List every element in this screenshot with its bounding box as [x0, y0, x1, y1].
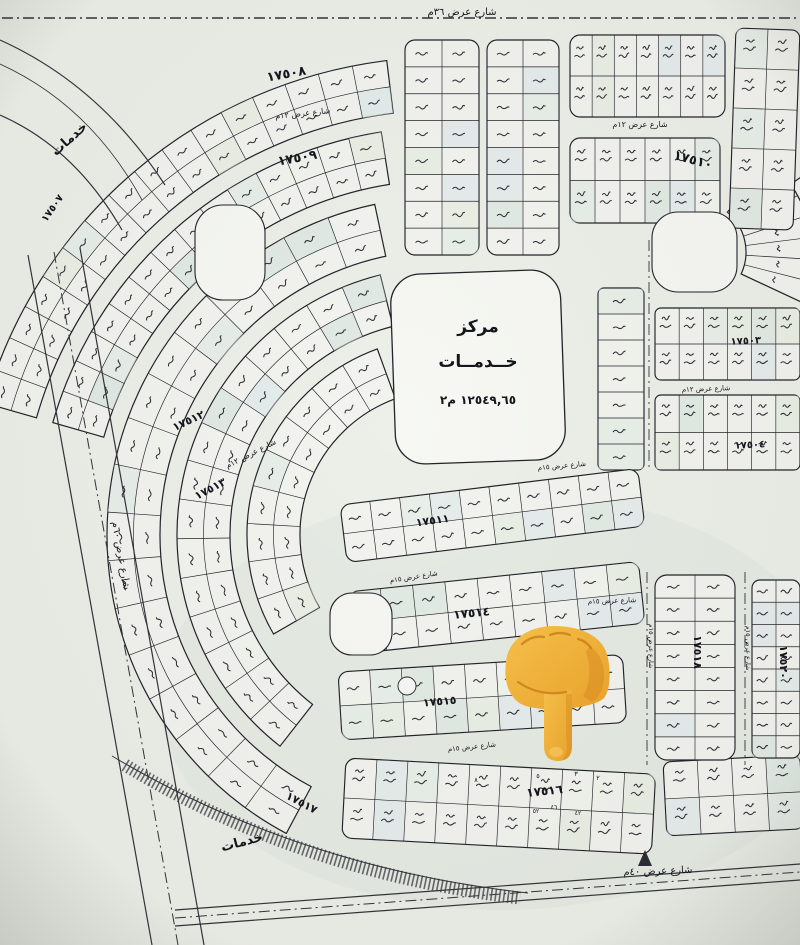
- tinted-parcel: [357, 87, 393, 118]
- tinted-parcel: [599, 445, 644, 470]
- services-center-title: خــدمــات: [438, 352, 517, 372]
- tinted-parcel: [623, 773, 655, 813]
- street-name-label: شارع عرض ٣٦م: [427, 7, 496, 18]
- tinted-parcel: [443, 121, 479, 147]
- tinted-parcel: [656, 433, 679, 469]
- tinted-parcel: [612, 498, 644, 529]
- tinted-parcel: [659, 36, 680, 76]
- plot-number: ٢: [596, 774, 600, 782]
- plot-map-photo: مركزخــدمــات١٢٥٤٩,٦٥ م٢شارع عرض ٣٦مشارع…: [0, 0, 800, 945]
- tinted-parcel: [777, 603, 800, 624]
- finger-tip-highlight: [549, 747, 563, 757]
- tinted-parcel: [443, 175, 479, 201]
- parcel-block: [487, 40, 559, 255]
- parcel-block: [655, 308, 800, 380]
- tinted-parcel: [443, 229, 479, 255]
- tinted-parcel: [406, 762, 438, 802]
- tinted-parcel: [704, 309, 727, 344]
- tinted-parcel: [753, 736, 776, 757]
- tinted-parcel: [666, 798, 701, 835]
- street-name-label: شارع عرض ١٢م: [682, 384, 731, 394]
- block-number-label: ١٧٥٠٤: [734, 439, 765, 452]
- tinted-parcel: [599, 289, 644, 314]
- open-area: [195, 205, 265, 300]
- open-area: [330, 593, 392, 655]
- subdivision-map: مركزخــدمــات١٢٥٤٩,٦٥ م٢شارع عرض ٣٦مشارع…: [0, 0, 800, 945]
- tinted-parcel: [542, 569, 576, 602]
- parcel-block: [598, 288, 644, 470]
- services-center-area: ١٢٥٤٩,٦٥ م٢: [440, 393, 516, 408]
- tinted-parcel: [768, 792, 800, 829]
- small-circle-plot: [398, 677, 416, 695]
- plot-number: ٥: [536, 772, 540, 780]
- block-number-label: ١٧٥٢٠: [777, 645, 790, 679]
- tinted-parcel: [406, 148, 442, 174]
- tinted-parcel: [776, 309, 799, 344]
- tinted-parcel: [735, 29, 767, 69]
- tinted-parcel: [571, 181, 595, 222]
- parcel-block: [729, 28, 800, 230]
- tinted-parcel: [752, 345, 775, 380]
- tinted-parcel: [599, 419, 644, 444]
- tinted-parcel: [524, 94, 559, 120]
- tinted-parcel: [680, 396, 703, 432]
- tinted-parcel: [766, 755, 800, 792]
- parcel-block: [655, 395, 800, 470]
- tinted-parcel: [593, 36, 614, 76]
- street-name-label: شارع عرض ١٥م: [744, 626, 752, 671]
- parcel-block: [342, 758, 656, 854]
- tinted-parcel: [753, 603, 776, 624]
- tinted-parcel: [341, 705, 373, 740]
- tinted-parcel: [593, 77, 614, 117]
- tinted-parcel: [607, 562, 641, 595]
- open-area: [652, 212, 737, 292]
- block-number-label: ١٧٥١٨: [691, 635, 704, 669]
- street-name-label: شارع عرض ١٥م: [588, 596, 637, 606]
- tinted-parcel: [488, 148, 523, 174]
- parcel-block: [570, 35, 725, 117]
- tinted-parcel: [524, 67, 559, 93]
- tinted-parcel: [443, 202, 479, 228]
- parcel-block: [663, 755, 800, 836]
- tinted-parcel: [730, 189, 762, 229]
- parcel-block: [570, 138, 720, 223]
- parcel-block: [752, 580, 800, 758]
- services-center-title: مركز: [456, 317, 499, 337]
- plot-number: ٥٢: [533, 808, 539, 815]
- parcel-block: [405, 40, 479, 255]
- tinted-parcel: [493, 513, 525, 544]
- tinted-parcel: [375, 760, 407, 800]
- tinted-parcel: [523, 509, 555, 540]
- tinted-parcel: [467, 697, 499, 732]
- tinted-parcel: [413, 582, 447, 615]
- tinted-parcel: [488, 202, 523, 228]
- tinted-parcel: [776, 396, 799, 432]
- plot-number: ٣: [574, 770, 578, 778]
- tinted-parcel: [582, 502, 614, 533]
- street-name-label: شارع عرض ١٢م: [612, 120, 668, 129]
- tinted-parcel: [488, 175, 523, 201]
- plot-number: ٤٢: [575, 810, 581, 817]
- tinted-parcel: [753, 625, 776, 646]
- tinted-parcel: [656, 714, 695, 736]
- street-name-label: شارع عرض ١٥م: [647, 624, 655, 669]
- tinted-parcel: [372, 703, 404, 738]
- plot-number: ٨: [474, 776, 478, 784]
- block-number-label: ١٧٥٠٣: [730, 335, 761, 348]
- tinted-parcel: [732, 109, 764, 149]
- plot-number: ٤٦: [551, 804, 557, 811]
- tinted-parcel: [703, 36, 724, 76]
- tinted-parcel: [373, 800, 405, 840]
